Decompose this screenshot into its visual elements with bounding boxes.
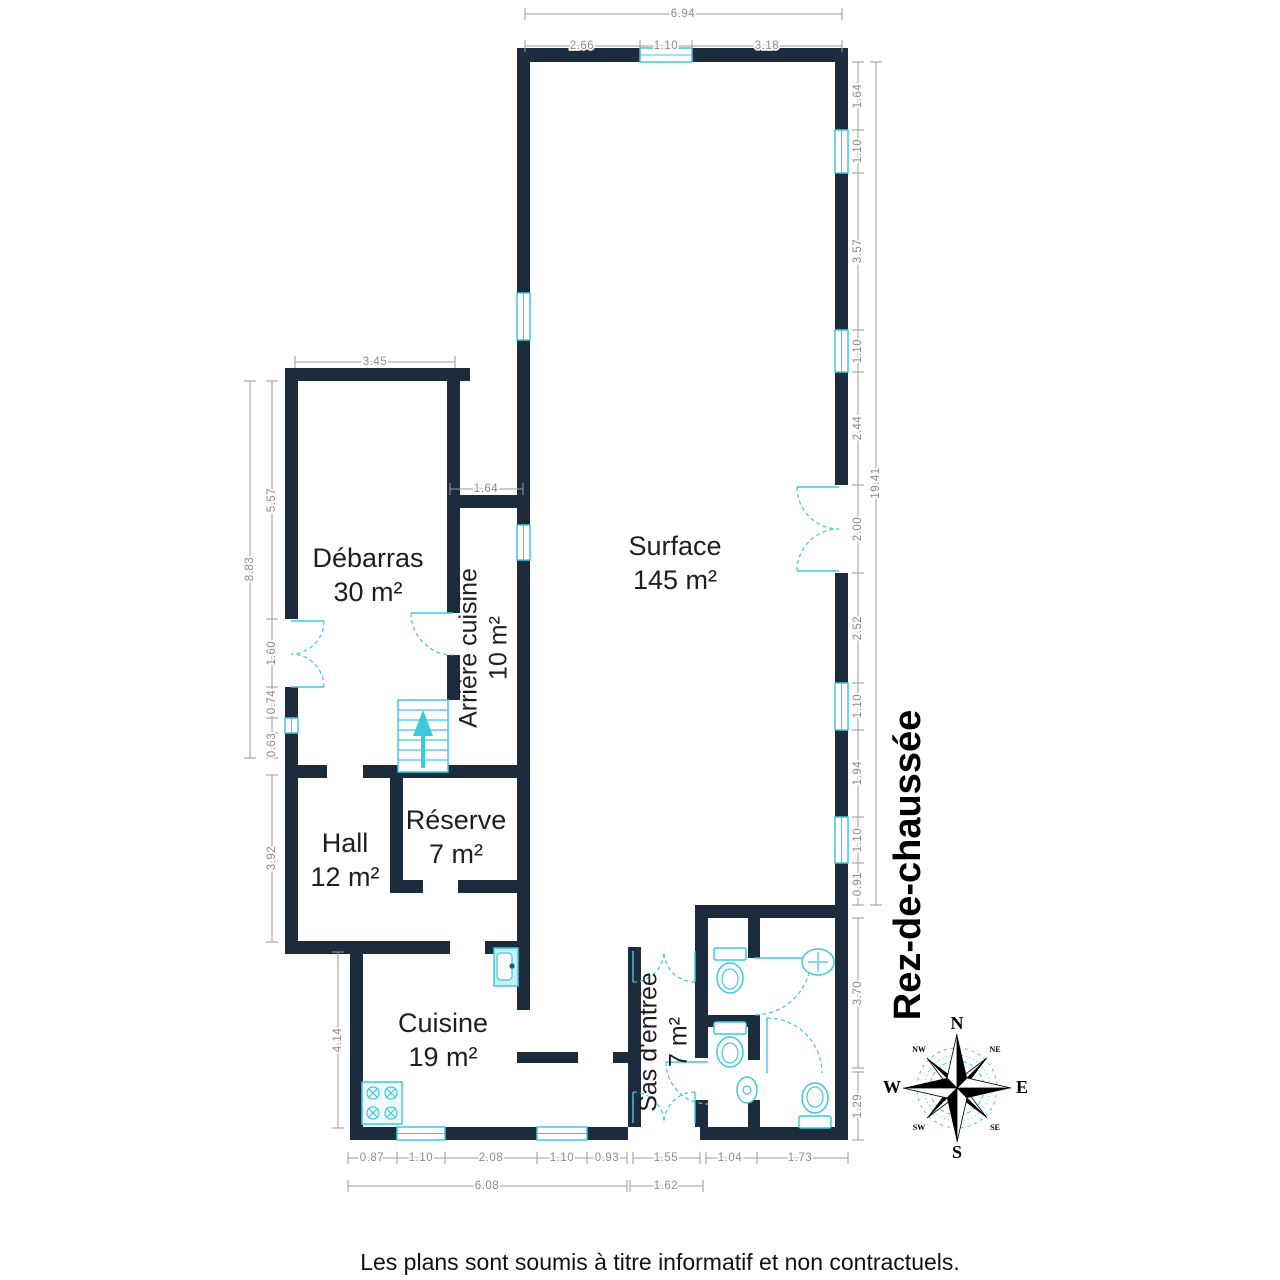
dimension-label: 19.41 <box>870 467 882 498</box>
dimension-label: 1.10 <box>852 139 864 163</box>
washbasin <box>802 949 834 975</box>
compass-south-label: S <box>952 1142 962 1162</box>
dimension-label: 0.93 <box>595 1152 619 1164</box>
room-name: Débarras <box>312 543 423 573</box>
room-area: 12 m² <box>310 862 379 892</box>
dimension-label: 8.83 <box>244 557 256 581</box>
toilet <box>714 948 746 993</box>
toilet <box>799 1083 831 1128</box>
dimension-label: 0.91 <box>852 872 864 896</box>
dimension-label: 1.64 <box>474 483 498 495</box>
dimension-label: 1.04 <box>718 1152 742 1164</box>
dimension-label: 0.87 <box>360 1152 384 1164</box>
dimension-label: 3.92 <box>266 846 278 870</box>
wall-segment <box>445 1127 537 1140</box>
wall-segment <box>700 1127 848 1140</box>
dimension-label: 3.57 <box>852 239 864 263</box>
dimension-label: 2.00 <box>852 517 864 541</box>
floor-title: Rez-de-chaussée <box>887 710 929 1020</box>
dimension-label: 1.62 <box>654 1180 678 1192</box>
room-name: Hall <box>322 828 369 858</box>
wall-segment <box>390 880 423 893</box>
dimension-label: 1.10 <box>654 40 678 52</box>
wall-segment <box>835 573 848 683</box>
room-area: 7 m² <box>665 1017 693 1067</box>
kitchen-sink <box>494 948 518 986</box>
wall-segment <box>835 863 848 1140</box>
dimension-label: 1.55 <box>654 1152 678 1164</box>
wall-segment <box>613 1052 628 1063</box>
dimension-label: 1.10 <box>852 694 864 718</box>
dimension-label: 4.14 <box>332 1028 344 1052</box>
dimension-label: 1.73 <box>788 1152 812 1164</box>
compass-northeast-label: NE <box>989 1045 1000 1054</box>
compass-rose: N E S W NE NW SE SW <box>883 1013 1028 1162</box>
dimension-label: 3.18 <box>755 40 779 52</box>
dimension-label: 3.45 <box>363 356 387 368</box>
wall-segment <box>517 340 530 495</box>
room-name: Cuisine <box>398 1008 488 1038</box>
dimension-label: 1.10 <box>409 1152 433 1164</box>
wall-segment <box>517 48 530 293</box>
wall-segment <box>517 560 530 1010</box>
dimension-label: 3.70 <box>852 981 864 1005</box>
washbasin <box>737 1077 757 1103</box>
compass-north-label: N <box>951 1013 964 1033</box>
wall-segment <box>285 687 298 718</box>
floor-plan: 6.94 2.66 1.10 3.18 1.64 1.10 3.57 1.10 … <box>0 0 1280 1280</box>
wall-segment <box>458 880 530 893</box>
dimension-label: 1.10 <box>550 1152 574 1164</box>
wall-segment <box>748 1015 760 1060</box>
dimension-label: 2.66 <box>570 40 594 52</box>
wall-segment <box>285 765 327 778</box>
room-name: Arrière cuisine <box>455 568 483 728</box>
toilet <box>714 1022 746 1067</box>
room-labels: Débarras 30 m² Arrière cuisine 10 m² Sur… <box>310 531 721 1112</box>
dimension-label: 2.08 <box>479 1152 503 1164</box>
wall-segment <box>350 941 363 1140</box>
compass-west-label: W <box>883 1077 901 1097</box>
wall-segment <box>835 48 848 130</box>
room-name: Sas d'entrée <box>635 972 663 1112</box>
dimension-label: 1.94 <box>852 761 864 785</box>
wall-segment <box>517 1052 578 1063</box>
dimension-label: 2.44 <box>852 416 864 440</box>
wall-segment <box>695 918 708 1058</box>
wall-segment <box>835 730 848 817</box>
room-name: Réserve <box>406 805 507 835</box>
dimension-label: 1.29 <box>852 1094 864 1118</box>
wall-segment <box>835 372 848 485</box>
compass-east-label: E <box>1016 1077 1028 1097</box>
wall-segment <box>363 941 450 954</box>
room-name: Surface <box>628 531 721 561</box>
wall-segment <box>587 1127 628 1140</box>
wall-segment <box>447 495 530 508</box>
dimension-label: 1.60 <box>266 641 278 665</box>
staircase <box>398 700 448 772</box>
dimension-label: 2.52 <box>852 616 864 640</box>
dimension-label: 0.74 <box>266 690 278 714</box>
wall-segment <box>285 368 470 381</box>
wall-segment <box>748 1100 760 1127</box>
dimension-label: 1.10 <box>852 339 864 363</box>
wall-segment <box>350 1127 397 1140</box>
wall-segment <box>390 765 403 893</box>
wall-segment <box>835 173 848 330</box>
compass-southeast-label: SE <box>990 1123 1000 1132</box>
wall-segment <box>695 905 848 918</box>
disclaimer-text: Les plans sont soumis à titre informatif… <box>360 1249 960 1275</box>
room-area: 7 m² <box>429 839 483 869</box>
room-area: 10 m² <box>485 616 513 680</box>
dimension-label: 1.10 <box>852 828 864 852</box>
compass-northwest-label: NW <box>912 1045 926 1054</box>
dimension-label: 5.57 <box>266 488 278 512</box>
wall-segment <box>748 918 760 958</box>
room-area: 30 m² <box>333 577 402 607</box>
room-area: 19 m² <box>408 1042 477 1072</box>
dimension-label: 1.64 <box>852 84 864 108</box>
room-area: 145 m² <box>633 565 717 595</box>
dimension-label: 0.63 <box>266 733 278 757</box>
stove <box>362 1082 402 1124</box>
wall-segment <box>285 368 298 619</box>
dimension-label: 6.94 <box>671 8 695 20</box>
dimension-label: 6.08 <box>475 1180 499 1192</box>
compass-southwest-label: SW <box>913 1123 925 1132</box>
